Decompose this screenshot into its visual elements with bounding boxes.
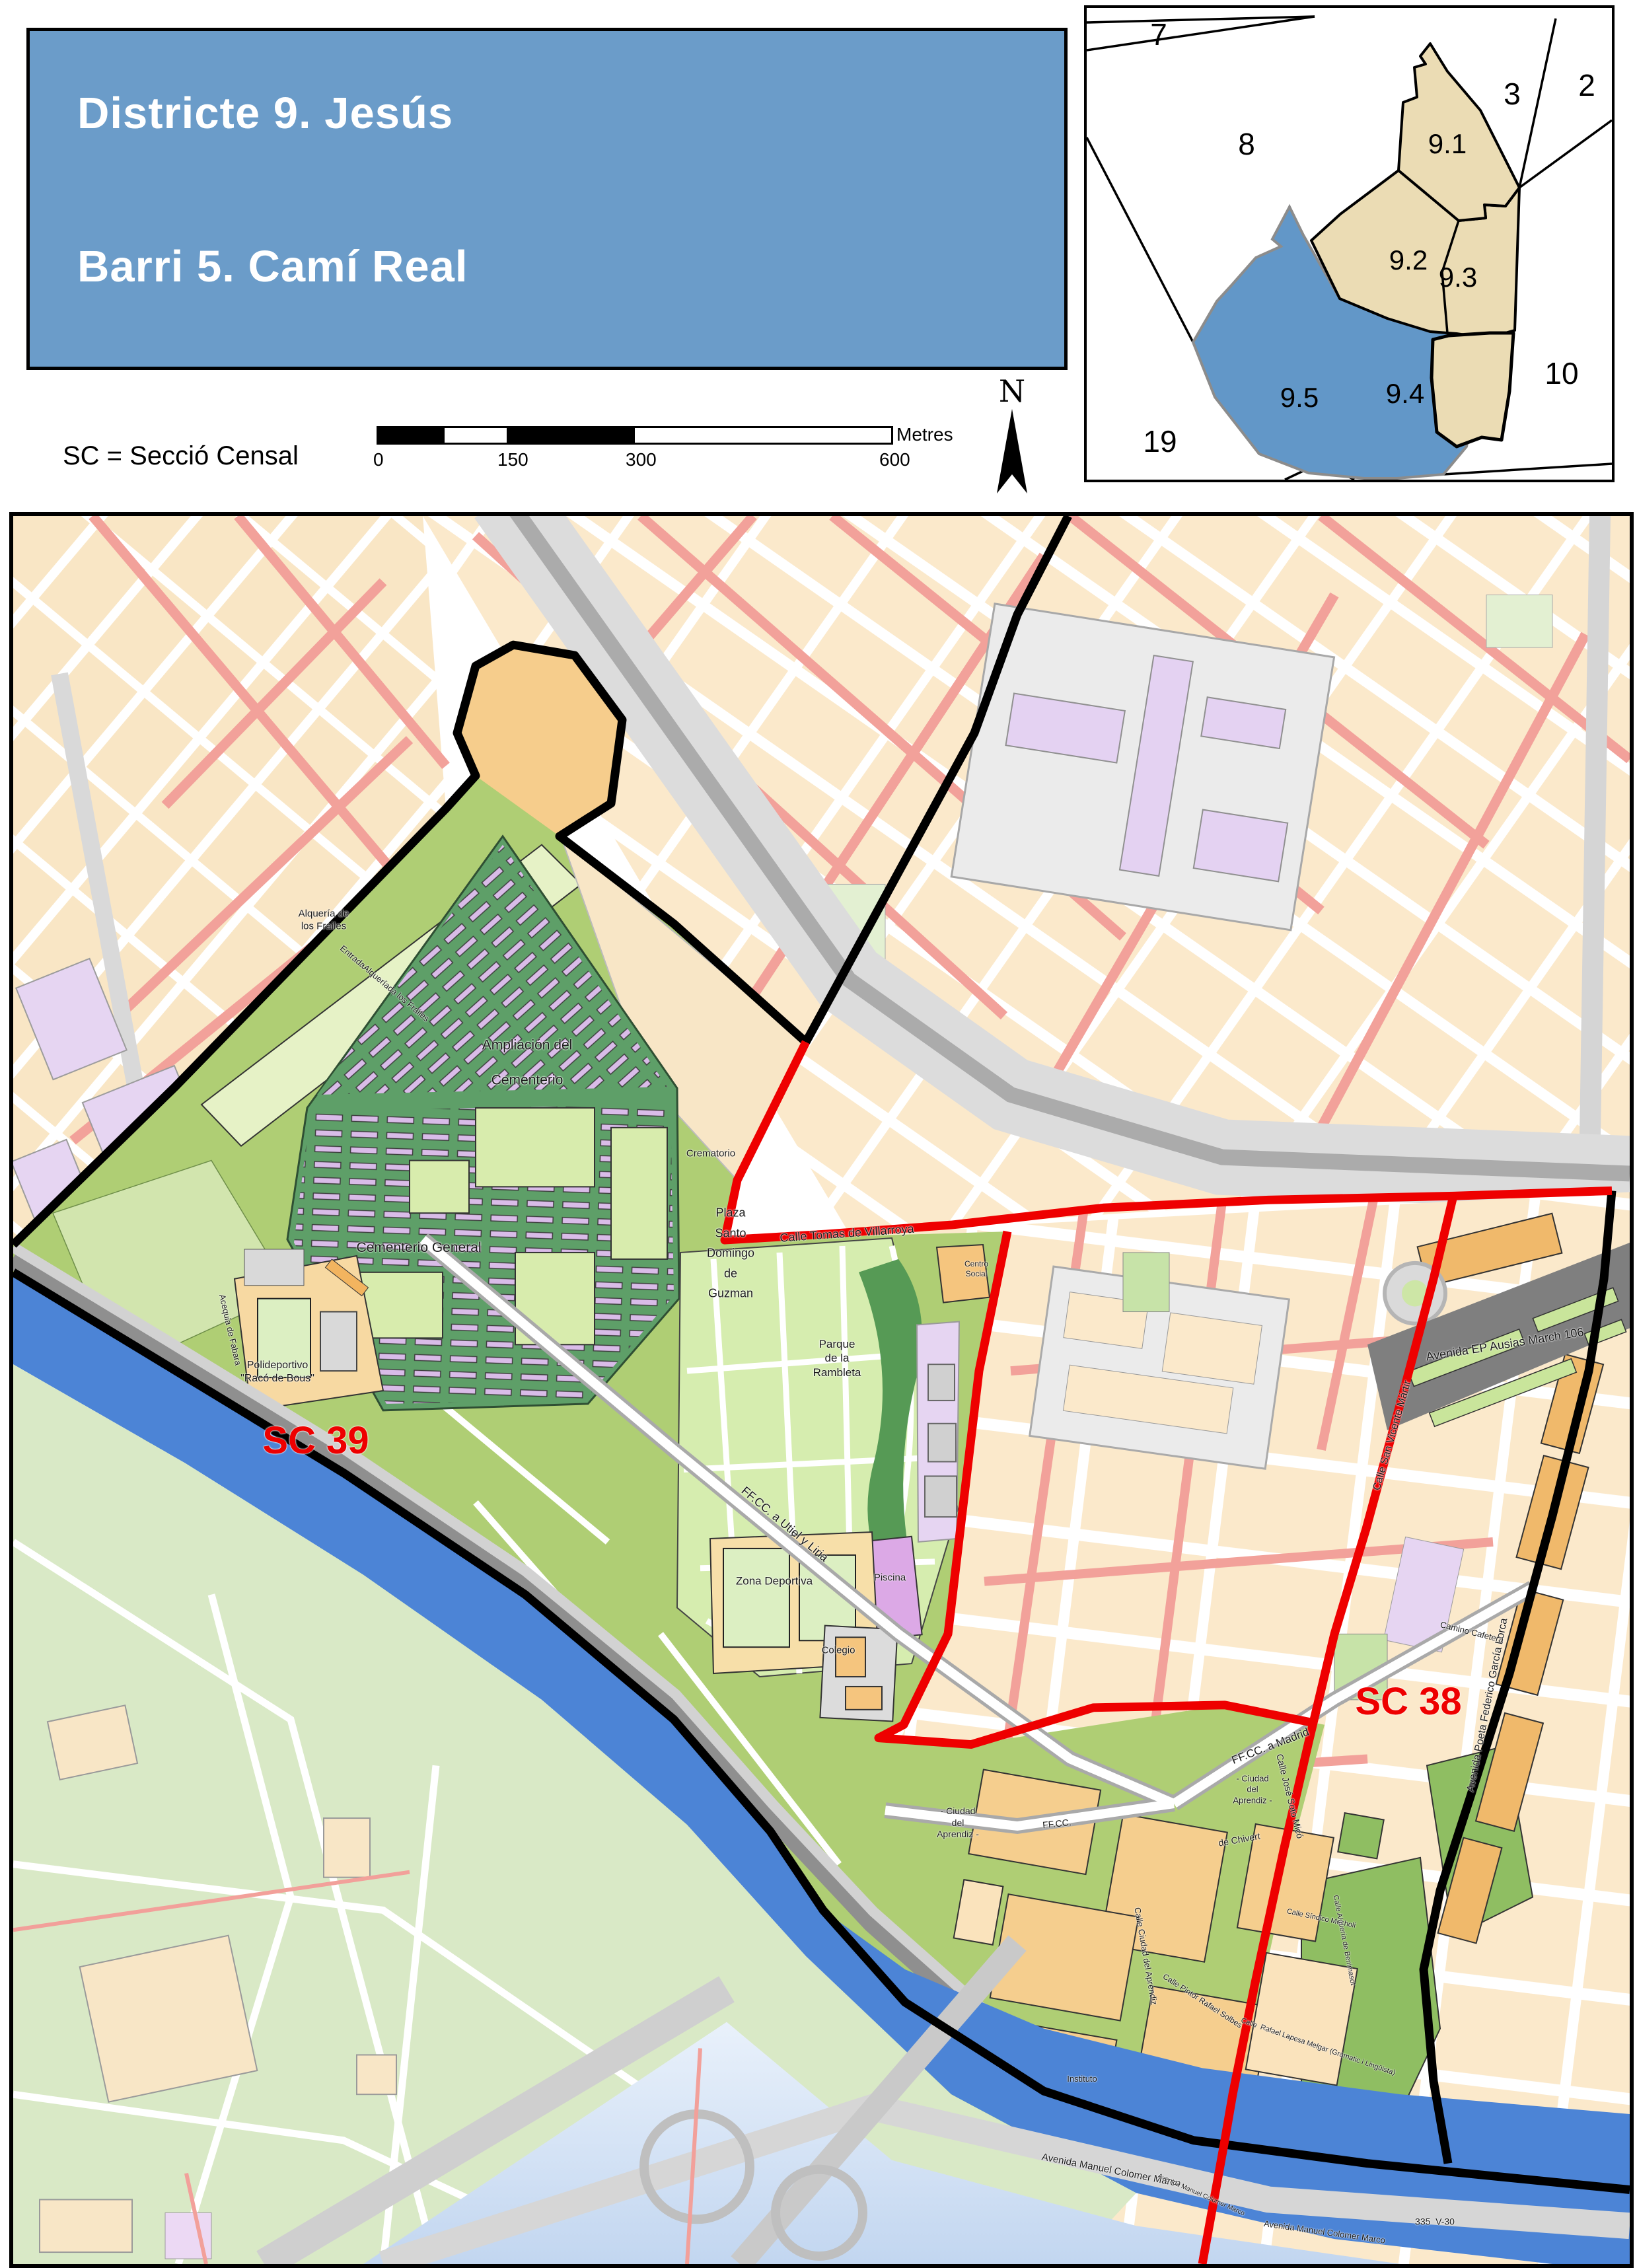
- north-arrow-icon: [989, 409, 1035, 494]
- scale-segment: [507, 428, 633, 443]
- ilb-district-7: 7: [1150, 17, 1167, 52]
- ilb-section-9-2: 9.2: [1389, 244, 1428, 276]
- ilb-section-9-1: 9.1: [1428, 128, 1467, 160]
- scale-segment: [379, 428, 443, 443]
- mlb-polideportivo: Polideportivo "Racó de Bous": [240, 1359, 314, 1385]
- scale-unit: Metres: [896, 424, 953, 445]
- page: { "header": { "title_line1": "Districte …: [0, 0, 1635, 2268]
- mlb-ampliacion-cementerio: Ampliación del Cementerio: [482, 1037, 573, 1089]
- scale-bar: 0 150 300 600 Metres: [377, 426, 893, 445]
- scale-segment: [633, 428, 889, 443]
- mlb-centro-social: Centro Social: [964, 1259, 988, 1279]
- scale-tick-600: 600: [879, 449, 910, 470]
- map-frame: SC 39SC 38Ampliación del CementerioCemen…: [9, 512, 1634, 2268]
- mlb-parque-rambleta: Parque de la Rambleta: [813, 1337, 861, 1379]
- mlb-crematorio: Crematorio: [686, 1148, 735, 1161]
- ilb-section-9-5: 9.5: [1280, 382, 1319, 414]
- mlb-sc-38: SC 38: [1355, 1678, 1461, 1726]
- north-arrow: N: [986, 373, 1038, 497]
- mlb-piscina: Piscina: [874, 1572, 906, 1585]
- mlb-plaza-santo-domingo: Plaza Santo Domingo de Guzman: [707, 1203, 754, 1304]
- north-label: N: [986, 373, 1038, 409]
- mlb-instituto: Instituto: [1067, 2074, 1097, 2084]
- mlb-alqueria-frailes: Alquería de los Frailes: [299, 908, 349, 933]
- mlb-cementerio-general: Cementerio General: [356, 1239, 481, 1257]
- scale-segment: [443, 428, 507, 443]
- city-map-canvas: [13, 516, 1630, 2264]
- scale-tick-300: 300: [626, 449, 657, 470]
- mlb-ciudad-aprendiz-2: - Ciudad del Aprendiz -: [1233, 1774, 1272, 1806]
- scale-tick-0: 0: [373, 449, 384, 470]
- ilb-section-9-3: 9.3: [1439, 262, 1477, 293]
- inset-canvas: [1087, 8, 1612, 480]
- mlb-zona-deportiva: Zona Deportiva: [736, 1574, 813, 1588]
- ilb-district-3: 3: [1504, 76, 1521, 112]
- ilb-section-9-4: 9.4: [1386, 378, 1424, 410]
- abbreviation-note: SC = Secció Censal: [63, 441, 299, 471]
- district-title: Districte 9. Jesús: [77, 88, 453, 139]
- mlb-sc-39: SC 39: [262, 1417, 369, 1465]
- mlb-v30: 335 V-30: [1415, 2216, 1455, 2228]
- title-panel: Districte 9. Jesús Barri 5. Camí Real: [26, 28, 1068, 370]
- mlb-colegio: Colegio: [822, 1645, 855, 1658]
- ilb-district-2: 2: [1578, 67, 1595, 103]
- district-inset-map: 783210199.19.29.39.49.5: [1084, 5, 1615, 482]
- ilb-district-10: 10: [1544, 355, 1578, 391]
- mlb-ciudad-aprendiz-1: - Ciudad del Aprendiz -: [937, 1806, 979, 1841]
- ilb-district-8: 8: [1238, 126, 1255, 162]
- ilb-district-19: 19: [1143, 423, 1177, 459]
- scale-tick-150: 150: [497, 449, 528, 470]
- barri-title: Barri 5. Camí Real: [77, 241, 468, 292]
